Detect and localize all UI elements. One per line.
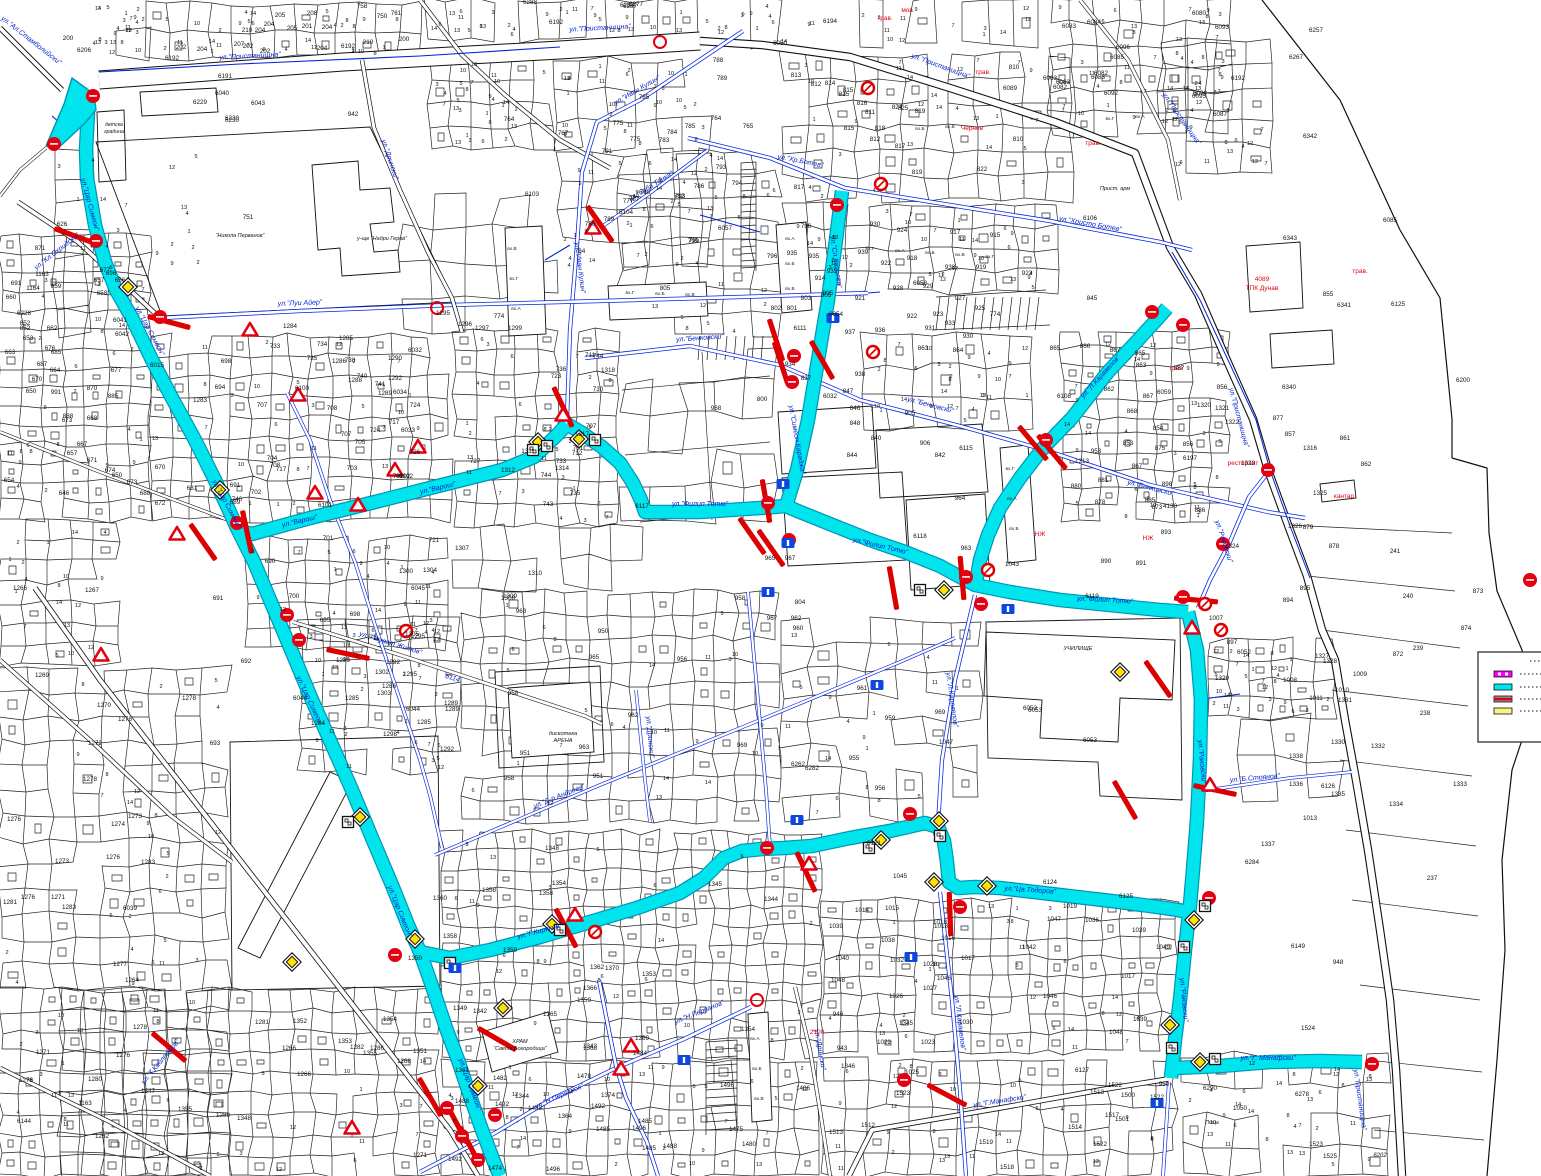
- svg-text:897: 897: [1227, 639, 1238, 646]
- svg-text:659: 659: [51, 283, 62, 290]
- svg-text:11: 11: [1072, 1045, 1078, 1051]
- svg-text:6: 6: [1150, 1137, 1153, 1143]
- svg-text:7: 7: [870, 407, 873, 413]
- svg-text:3: 3: [938, 1072, 941, 1078]
- svg-text:14: 14: [1235, 1102, 1241, 1108]
- svg-text:2: 2: [141, 17, 144, 23]
- svg-text:вх.Г: вх.Г: [1106, 116, 1115, 122]
- svg-text:4: 4: [567, 263, 570, 269]
- svg-text:906: 906: [920, 440, 931, 447]
- svg-text:2: 2: [902, 1013, 905, 1019]
- svg-text:1: 1: [1025, 393, 1028, 399]
- svg-text:7: 7: [415, 1132, 418, 1138]
- svg-text:5: 5: [542, 70, 545, 76]
- svg-text:1316: 1316: [1303, 445, 1318, 452]
- svg-text:14: 14: [781, 39, 787, 45]
- svg-text:11: 11: [838, 1166, 844, 1172]
- svg-text:4: 4: [476, 381, 479, 387]
- svg-text:1292: 1292: [388, 375, 403, 382]
- svg-text:12: 12: [957, 67, 963, 73]
- svg-text:863: 863: [1136, 362, 1147, 369]
- svg-text:детска: детска: [105, 122, 123, 128]
- svg-text:6192: 6192: [165, 55, 180, 62]
- svg-text:7: 7: [1062, 104, 1065, 110]
- svg-text:6: 6: [563, 132, 566, 138]
- svg-text:743: 743: [543, 501, 554, 508]
- svg-text:13: 13: [480, 24, 486, 30]
- svg-text:2: 2: [199, 1166, 202, 1172]
- svg-text:11: 11: [900, 16, 906, 22]
- svg-text:1274: 1274: [111, 821, 126, 828]
- svg-text:1: 1: [755, 26, 758, 32]
- svg-text:4: 4: [926, 655, 929, 661]
- svg-text:3: 3: [468, 138, 471, 144]
- svg-text:5: 5: [680, 315, 683, 321]
- svg-text:10: 10: [1010, 1083, 1016, 1089]
- svg-text:1309: 1309: [503, 593, 518, 600]
- svg-text:7: 7: [590, 6, 593, 12]
- svg-text:2: 2: [404, 719, 407, 725]
- svg-text:815: 815: [844, 125, 855, 132]
- svg-text:662: 662: [47, 325, 58, 332]
- svg-text:14: 14: [1276, 1081, 1282, 1087]
- svg-text:671: 671: [87, 457, 98, 464]
- svg-text:6: 6: [1003, 226, 1006, 232]
- svg-text:1: 1: [653, 84, 656, 90]
- svg-text:13: 13: [110, 40, 116, 46]
- svg-text:950: 950: [598, 628, 609, 635]
- svg-text:1276: 1276: [118, 716, 133, 723]
- svg-text:8: 8: [1218, 72, 1221, 78]
- svg-text:3: 3: [434, 692, 437, 698]
- svg-text:6: 6: [610, 722, 613, 728]
- svg-text:654: 654: [4, 477, 15, 484]
- svg-text:6: 6: [471, 788, 474, 794]
- svg-text:867: 867: [1132, 463, 1143, 470]
- svg-text:4: 4: [16, 484, 19, 490]
- svg-text:915: 915: [990, 232, 1001, 239]
- svg-text:10: 10: [676, 98, 682, 104]
- svg-text:5: 5: [325, 9, 328, 15]
- svg-text:780: 780: [585, 221, 596, 228]
- svg-text:962: 962: [791, 615, 802, 622]
- svg-text:1: 1: [957, 218, 960, 224]
- svg-text:9: 9: [838, 1101, 841, 1107]
- svg-text:4: 4: [332, 611, 335, 617]
- svg-text:898: 898: [1162, 481, 1173, 488]
- svg-text:1348: 1348: [545, 845, 560, 852]
- svg-text:6053: 6053: [1028, 707, 1043, 714]
- svg-text:УЧИЛИЩЕ: УЧИЛИЩЕ: [1062, 646, 1092, 652]
- svg-text:3: 3: [57, 164, 60, 170]
- svg-text:1045: 1045: [893, 873, 908, 880]
- svg-text:9: 9: [760, 723, 763, 729]
- svg-text:1: 1: [465, 421, 468, 427]
- svg-text:12: 12: [1030, 995, 1036, 1001]
- svg-text:705: 705: [355, 439, 366, 446]
- svg-text:10: 10: [651, 730, 657, 736]
- svg-text:875: 875: [1155, 445, 1166, 452]
- svg-text:1017: 1017: [1121, 973, 1136, 980]
- svg-text:4: 4: [846, 719, 849, 725]
- svg-text:7: 7: [442, 102, 445, 108]
- svg-text:6: 6: [766, 193, 769, 199]
- svg-text:4: 4: [971, 407, 974, 413]
- svg-text:8: 8: [1101, 1011, 1104, 1017]
- svg-text:11: 11: [705, 655, 711, 661]
- svg-text:4089: 4089: [1255, 276, 1270, 283]
- svg-text:1374: 1374: [601, 1092, 616, 1099]
- svg-text:1043: 1043: [1005, 561, 1020, 568]
- svg-text:7: 7: [516, 1145, 519, 1151]
- svg-text:817: 817: [794, 184, 805, 191]
- svg-text:11: 11: [1204, 159, 1210, 165]
- svg-text:951: 951: [593, 773, 604, 780]
- svg-text:12: 12: [691, 171, 697, 177]
- svg-text:691: 691: [230, 482, 241, 489]
- svg-text:7: 7: [951, 23, 954, 29]
- svg-text:1475: 1475: [729, 1126, 744, 1133]
- svg-text:11: 11: [884, 28, 890, 34]
- svg-text:9: 9: [1202, 431, 1205, 437]
- svg-text:1: 1: [982, 32, 985, 38]
- svg-text:13: 13: [382, 464, 388, 470]
- svg-text:724: 724: [410, 402, 421, 409]
- svg-text:796: 796: [767, 253, 778, 260]
- svg-text:6095: 6095: [1192, 93, 1207, 100]
- svg-text:1522: 1522: [1108, 1082, 1123, 1089]
- svg-text:958: 958: [735, 595, 746, 602]
- svg-text:6: 6: [1291, 709, 1294, 715]
- svg-text:6: 6: [352, 549, 355, 555]
- svg-text:1: 1: [485, 111, 488, 117]
- svg-text:9: 9: [456, 1030, 459, 1036]
- svg-text:11: 11: [599, 79, 605, 85]
- svg-text:6082: 6082: [1053, 84, 1068, 91]
- svg-text:7: 7: [419, 1104, 422, 1110]
- svg-text:693: 693: [210, 740, 221, 747]
- svg-text:14: 14: [1248, 1109, 1254, 1115]
- svg-text:1280: 1280: [88, 1076, 103, 1083]
- svg-text:1048: 1048: [831, 977, 846, 984]
- svg-text:672: 672: [155, 500, 166, 507]
- svg-text:5: 5: [555, 447, 558, 453]
- svg-text:13: 13: [490, 855, 496, 861]
- svg-text:1289: 1289: [378, 390, 393, 397]
- svg-text:6206: 6206: [77, 47, 92, 54]
- svg-text:8: 8: [98, 37, 101, 43]
- svg-text:723: 723: [551, 373, 562, 380]
- svg-text:6228: 6228: [17, 310, 32, 317]
- svg-text:вх.А: вх.А: [511, 306, 521, 312]
- svg-text:991: 991: [51, 389, 62, 396]
- svg-text:774: 774: [494, 313, 505, 320]
- svg-text:801: 801: [787, 305, 798, 312]
- svg-text:921: 921: [855, 295, 866, 302]
- svg-text:1042: 1042: [1022, 944, 1037, 951]
- svg-text:764: 764: [504, 116, 515, 123]
- svg-text:6343: 6343: [1283, 235, 1298, 242]
- svg-text:6149: 6149: [1291, 943, 1306, 950]
- svg-text:8: 8: [1292, 1072, 1295, 1078]
- svg-text:813: 813: [791, 72, 802, 79]
- svg-text:681: 681: [187, 485, 198, 492]
- svg-text:4: 4: [105, 244, 108, 250]
- svg-text:785: 785: [685, 123, 696, 130]
- svg-text:14: 14: [907, 75, 913, 81]
- svg-text:938: 938: [945, 264, 956, 271]
- svg-text:707: 707: [257, 402, 268, 409]
- svg-text:1039: 1039: [829, 923, 844, 930]
- svg-text:10: 10: [543, 1092, 549, 1098]
- svg-text:вх.Б: вх.Б: [915, 126, 924, 132]
- svg-text:4: 4: [879, 1023, 882, 1029]
- svg-text:1522: 1522: [1093, 1141, 1108, 1148]
- svg-text:13: 13: [1183, 86, 1189, 92]
- svg-text:3: 3: [44, 278, 47, 284]
- svg-text:6262: 6262: [791, 761, 806, 768]
- svg-text:6057: 6057: [718, 225, 733, 232]
- svg-text:7: 7: [246, 43, 249, 49]
- svg-text:865: 865: [1135, 350, 1146, 357]
- svg-text:1280: 1280: [216, 1112, 231, 1119]
- svg-text:866: 866: [1080, 343, 1091, 350]
- svg-text:13: 13: [652, 304, 658, 310]
- svg-text:956: 956: [677, 656, 688, 663]
- svg-text:1289: 1289: [445, 706, 460, 713]
- svg-text:734: 734: [317, 341, 328, 348]
- svg-text:6082: 6082: [1094, 70, 1109, 77]
- svg-text:6: 6: [481, 139, 484, 145]
- svg-text:4: 4: [765, 4, 768, 10]
- svg-text:1366: 1366: [583, 985, 598, 992]
- svg-text:2: 2: [1212, 701, 1215, 707]
- svg-text:1350: 1350: [408, 955, 423, 962]
- svg-text:6108: 6108: [1057, 393, 1072, 400]
- svg-text:6: 6: [914, 366, 917, 372]
- svg-text:1523: 1523: [1309, 1141, 1324, 1148]
- svg-text:14: 14: [119, 323, 125, 329]
- svg-text:7: 7: [129, 16, 132, 22]
- svg-text:1022: 1022: [877, 1039, 892, 1046]
- svg-text:1009: 1009: [1353, 671, 1368, 678]
- svg-text:8: 8: [1215, 475, 1218, 481]
- svg-text:2: 2: [548, 427, 551, 433]
- svg-text:8: 8: [1270, 651, 1273, 657]
- svg-text:12: 12: [1333, 1072, 1339, 1078]
- svg-text:1285: 1285: [339, 335, 354, 342]
- svg-text:вх.В: вх.В: [754, 1096, 763, 1102]
- svg-text:1007: 1007: [1209, 615, 1224, 622]
- svg-text:12: 12: [290, 1125, 296, 1131]
- svg-text:2: 2: [165, 874, 168, 880]
- svg-text:2: 2: [763, 302, 766, 308]
- svg-text:890: 890: [1101, 558, 1112, 565]
- svg-text:3: 3: [1006, 919, 1009, 925]
- svg-text:3: 3: [363, 674, 366, 680]
- svg-text:6125: 6125: [1119, 893, 1134, 900]
- svg-text:958: 958: [504, 775, 515, 782]
- svg-text:6192: 6192: [549, 19, 564, 26]
- svg-text:5: 5: [105, 463, 108, 469]
- svg-text:10: 10: [460, 68, 466, 74]
- svg-text:922: 922: [907, 313, 918, 320]
- svg-text:10: 10: [238, 462, 244, 468]
- svg-text:1286: 1286: [382, 683, 397, 690]
- svg-text:930: 930: [870, 221, 881, 228]
- svg-text:6032: 6032: [408, 347, 423, 354]
- svg-text:1485: 1485: [638, 1118, 653, 1125]
- svg-text:13: 13: [1307, 1097, 1313, 1103]
- svg-text:1368: 1368: [583, 1045, 598, 1052]
- svg-text:664: 664: [50, 367, 61, 374]
- svg-text:1298: 1298: [383, 731, 398, 738]
- svg-text:4: 4: [872, 188, 875, 194]
- svg-text:691: 691: [11, 280, 22, 287]
- svg-text:14: 14: [1000, 30, 1006, 36]
- svg-text:2: 2: [136, 7, 139, 13]
- svg-text:917: 917: [950, 229, 961, 236]
- svg-text:1278: 1278: [133, 1024, 148, 1031]
- svg-text:775: 775: [630, 136, 641, 143]
- svg-text:11: 11: [458, 15, 464, 21]
- svg-text:12: 12: [512, 1092, 518, 1098]
- svg-text:1: 1: [1251, 667, 1254, 673]
- svg-text:11: 11: [469, 899, 475, 905]
- svg-text:1276: 1276: [21, 894, 36, 901]
- svg-text:2: 2: [265, 340, 268, 346]
- svg-text:1338: 1338: [1289, 753, 1304, 760]
- svg-text:3: 3: [1213, 90, 1216, 96]
- svg-text:4: 4: [431, 570, 434, 576]
- svg-text:14: 14: [658, 938, 664, 944]
- svg-text:1283: 1283: [62, 904, 77, 911]
- svg-text:1163: 1163: [35, 271, 49, 278]
- svg-text:5: 5: [506, 668, 509, 674]
- svg-text:9: 9: [914, 7, 917, 13]
- svg-text:6: 6: [315, 738, 318, 744]
- svg-text:7: 7: [955, 406, 958, 412]
- svg-text:6: 6: [518, 402, 521, 408]
- svg-text:1328: 1328: [1323, 658, 1338, 665]
- svg-text:837: 837: [801, 375, 812, 382]
- svg-text:8: 8: [1341, 1083, 1344, 1089]
- svg-text:14: 14: [503, 100, 509, 106]
- svg-text:5: 5: [166, 851, 169, 857]
- svg-text:11: 11: [572, 7, 578, 13]
- svg-text:9: 9: [488, 94, 491, 100]
- svg-text:1523: 1523: [896, 1090, 911, 1097]
- svg-text:931: 931: [925, 325, 936, 332]
- svg-text:4: 4: [15, 980, 18, 986]
- svg-text:2: 2: [627, 68, 630, 74]
- svg-text:4: 4: [130, 947, 133, 953]
- svg-text:1: 1: [210, 49, 213, 55]
- svg-text:1496: 1496: [546, 1166, 561, 1173]
- svg-text:10: 10: [609, 102, 615, 108]
- svg-text:5: 5: [937, 362, 940, 368]
- svg-text:5: 5: [163, 938, 166, 944]
- svg-text:4: 4: [386, 561, 389, 567]
- svg-text:12: 12: [1105, 342, 1111, 348]
- svg-text:9: 9: [476, 903, 479, 909]
- svg-text:1330: 1330: [1331, 739, 1346, 746]
- svg-text:у-ще “Надри Геров”: у-ще “Надри Геров”: [356, 236, 408, 242]
- svg-text:10: 10: [1078, 111, 1084, 117]
- svg-text:1478: 1478: [577, 1073, 592, 1080]
- svg-text:4: 4: [914, 979, 917, 985]
- svg-text:4: 4: [1124, 429, 1127, 435]
- svg-text:2: 2: [614, 1162, 617, 1168]
- svg-text:6: 6: [771, 20, 774, 26]
- svg-text:5: 5: [584, 708, 587, 714]
- svg-text:6: 6: [692, 1084, 695, 1090]
- svg-text:1015: 1015: [885, 905, 900, 912]
- svg-text:9: 9: [362, 17, 365, 23]
- svg-text:967: 967: [785, 555, 796, 562]
- svg-text:1019: 1019: [1063, 903, 1078, 910]
- svg-text:14: 14: [1243, 653, 1249, 659]
- svg-text:6: 6: [835, 796, 838, 802]
- svg-text:1342: 1342: [473, 1008, 488, 1015]
- svg-text:937: 937: [845, 329, 856, 336]
- svg-text:9: 9: [146, 821, 149, 827]
- svg-text:9: 9: [1186, 366, 1189, 372]
- svg-text:Прист. арм: Прист. арм: [1100, 186, 1130, 192]
- svg-text:9: 9: [1283, 700, 1286, 706]
- svg-text:9: 9: [1058, 5, 1061, 11]
- svg-text:1038: 1038: [881, 937, 896, 944]
- svg-text:10: 10: [752, 751, 758, 757]
- svg-text:10: 10: [384, 545, 390, 551]
- svg-text:958: 958: [508, 690, 519, 697]
- svg-text:656: 656: [115, 277, 126, 284]
- svg-text:3: 3: [309, 634, 312, 640]
- svg-text:6277: 6277: [629, 1, 644, 8]
- svg-text:1011: 1011: [1309, 695, 1323, 702]
- svg-text:3: 3: [491, 10, 494, 16]
- svg-text:12: 12: [434, 629, 440, 635]
- svg-text:9: 9: [862, 735, 865, 741]
- svg-text:11: 11: [785, 724, 791, 730]
- svg-text:8: 8: [345, 18, 348, 24]
- svg-text:1513: 1513: [829, 1129, 844, 1136]
- svg-text:1358: 1358: [539, 890, 554, 897]
- svg-text:4: 4: [333, 23, 336, 29]
- svg-text:5: 5: [165, 17, 168, 23]
- svg-text:12: 12: [947, 404, 953, 410]
- svg-text:9: 9: [577, 168, 580, 174]
- svg-text:10: 10: [562, 123, 568, 129]
- svg-text:9: 9: [1172, 109, 1175, 115]
- svg-text:12: 12: [215, 830, 221, 836]
- svg-text:12: 12: [609, 28, 615, 34]
- svg-text:2: 2: [662, 1146, 665, 1152]
- svg-text:1333: 1333: [1453, 781, 1468, 788]
- svg-text:1312: 1312: [501, 467, 516, 474]
- svg-text:6202: 6202: [1373, 1153, 1387, 1159]
- svg-text:894: 894: [1283, 597, 1294, 604]
- svg-text:9: 9: [929, 404, 932, 410]
- svg-text:6: 6: [772, 188, 775, 194]
- svg-text:658: 658: [97, 290, 108, 297]
- svg-text:8: 8: [296, 467, 299, 473]
- svg-text:1317: 1317: [575, 431, 590, 438]
- svg-text:6267: 6267: [1289, 54, 1304, 61]
- svg-text:12: 12: [899, 38, 905, 44]
- svg-text:670: 670: [155, 464, 166, 471]
- svg-text:9: 9: [100, 576, 103, 582]
